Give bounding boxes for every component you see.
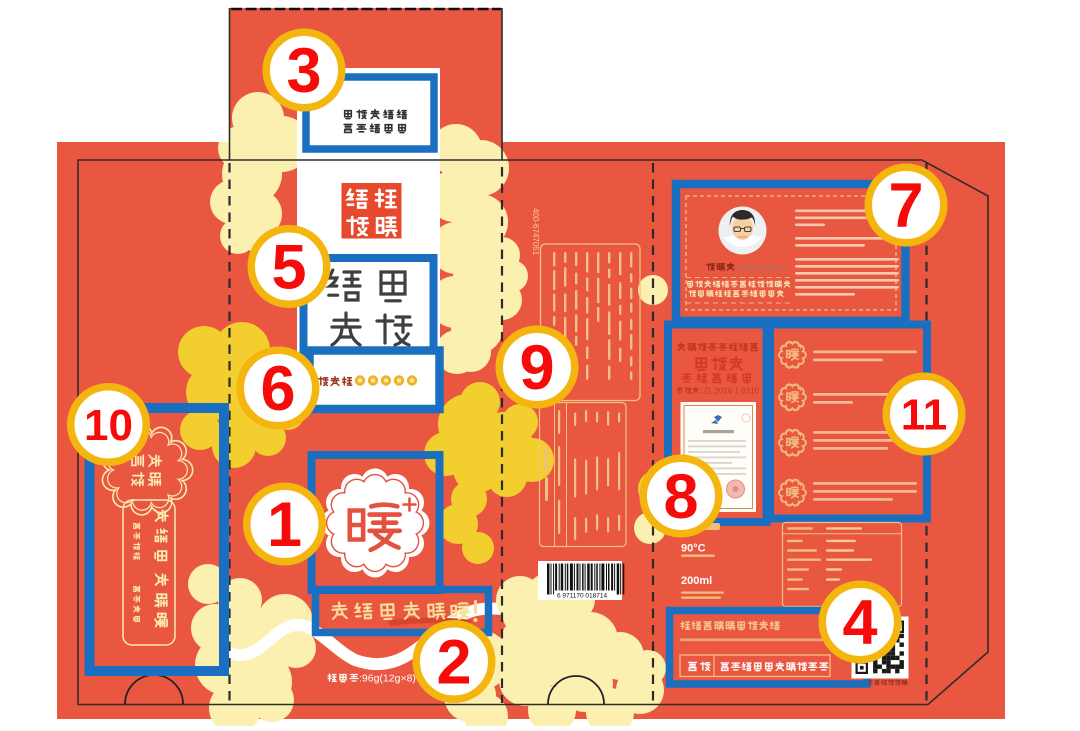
svg-text:10: 10 bbox=[84, 401, 133, 450]
svg-text:7: 7 bbox=[888, 171, 923, 241]
svg-text:3: 3 bbox=[286, 36, 321, 106]
svg-text:90°C: 90°C bbox=[681, 543, 706, 555]
svg-text:6: 6 bbox=[260, 354, 295, 424]
svg-text:8: 8 bbox=[663, 462, 698, 532]
svg-text:5: 5 bbox=[271, 233, 306, 303]
svg-text:4: 4 bbox=[842, 588, 877, 658]
svg-text:2: 2 bbox=[436, 628, 471, 698]
svg-text:1: 1 bbox=[267, 490, 302, 560]
svg-text:400-6747051: 400-6747051 bbox=[531, 208, 540, 256]
svg-text:9: 9 bbox=[519, 333, 554, 403]
svg-text:6 971170 018714: 6 971170 018714 bbox=[557, 593, 608, 600]
svg-text:200ml: 200ml bbox=[681, 575, 712, 587]
svg-text::ZL 2016 1 0310: :ZL 2016 1 0310 bbox=[701, 387, 760, 396]
svg-text:11: 11 bbox=[901, 391, 948, 440]
svg-text::96g(12g×8): :96g(12g×8) bbox=[359, 673, 416, 685]
